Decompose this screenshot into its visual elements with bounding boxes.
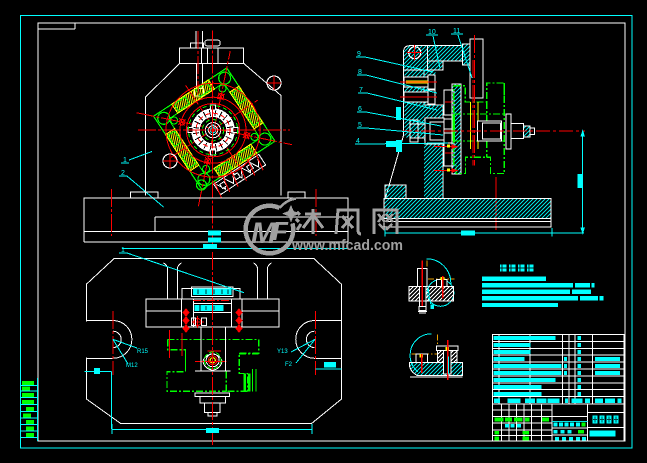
- svg-text:Y13: Y13: [277, 349, 288, 355]
- svg-text:M12: M12: [126, 363, 138, 369]
- svg-text:www.mfcad.com: www.mfcad.com: [291, 237, 403, 254]
- svg-text:F2: F2: [285, 362, 293, 368]
- svg-text:R15: R15: [137, 349, 149, 355]
- svg-text:F: F: [272, 216, 289, 246]
